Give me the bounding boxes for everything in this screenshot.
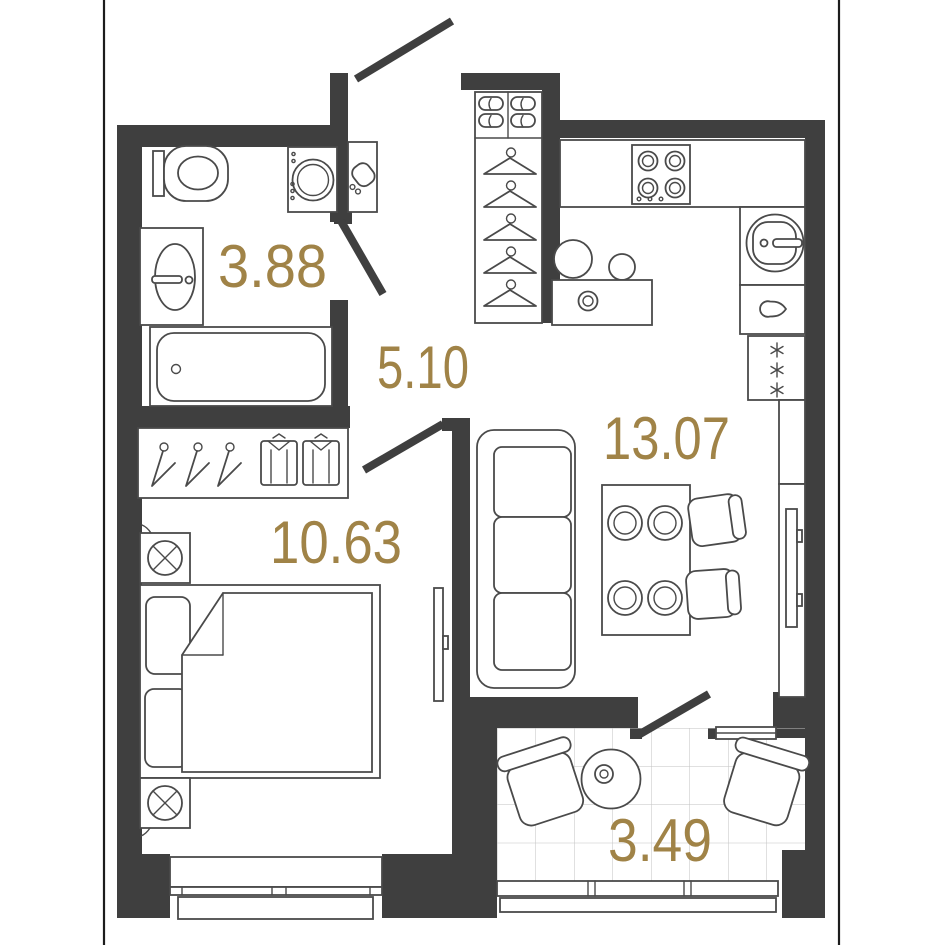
bathtub bbox=[150, 327, 332, 406]
bedroom-wardrobe bbox=[138, 428, 348, 498]
room-label-hallway: 5.10 bbox=[377, 334, 469, 401]
balcony-door-threshold bbox=[716, 727, 776, 739]
stove bbox=[632, 145, 690, 204]
dining-chair bbox=[685, 568, 741, 620]
dining-chair bbox=[687, 492, 747, 547]
room-label-kitchen-living: 13.07 bbox=[603, 405, 730, 472]
bedroom-window bbox=[170, 857, 382, 919]
kitchen-cabinet bbox=[740, 285, 805, 334]
floorplan-page: 3.88 5.10 13.07 10.63 3.49 bbox=[0, 0, 945, 945]
room-label-bedroom: 10.63 bbox=[270, 509, 402, 576]
fridge bbox=[748, 336, 805, 400]
toilet bbox=[153, 146, 228, 201]
bedside-lamp bbox=[140, 525, 190, 583]
hall-closet bbox=[475, 92, 542, 323]
hall-corner-basin bbox=[348, 142, 378, 212]
sofa bbox=[477, 430, 575, 688]
dining-table bbox=[602, 485, 690, 635]
bed bbox=[140, 585, 380, 778]
room-label-bathroom: 3.88 bbox=[218, 233, 327, 300]
bedside-lamp bbox=[140, 778, 190, 836]
balcony-table bbox=[582, 750, 641, 809]
washing-machine bbox=[288, 147, 337, 212]
room-label-balcony: 3.49 bbox=[608, 807, 712, 874]
floorplan-canvas: 3.88 5.10 13.07 10.63 3.49 bbox=[0, 0, 945, 945]
kitchen-sink bbox=[740, 207, 805, 285]
bathroom-sink bbox=[140, 228, 203, 325]
balcony-glazing bbox=[497, 881, 778, 912]
